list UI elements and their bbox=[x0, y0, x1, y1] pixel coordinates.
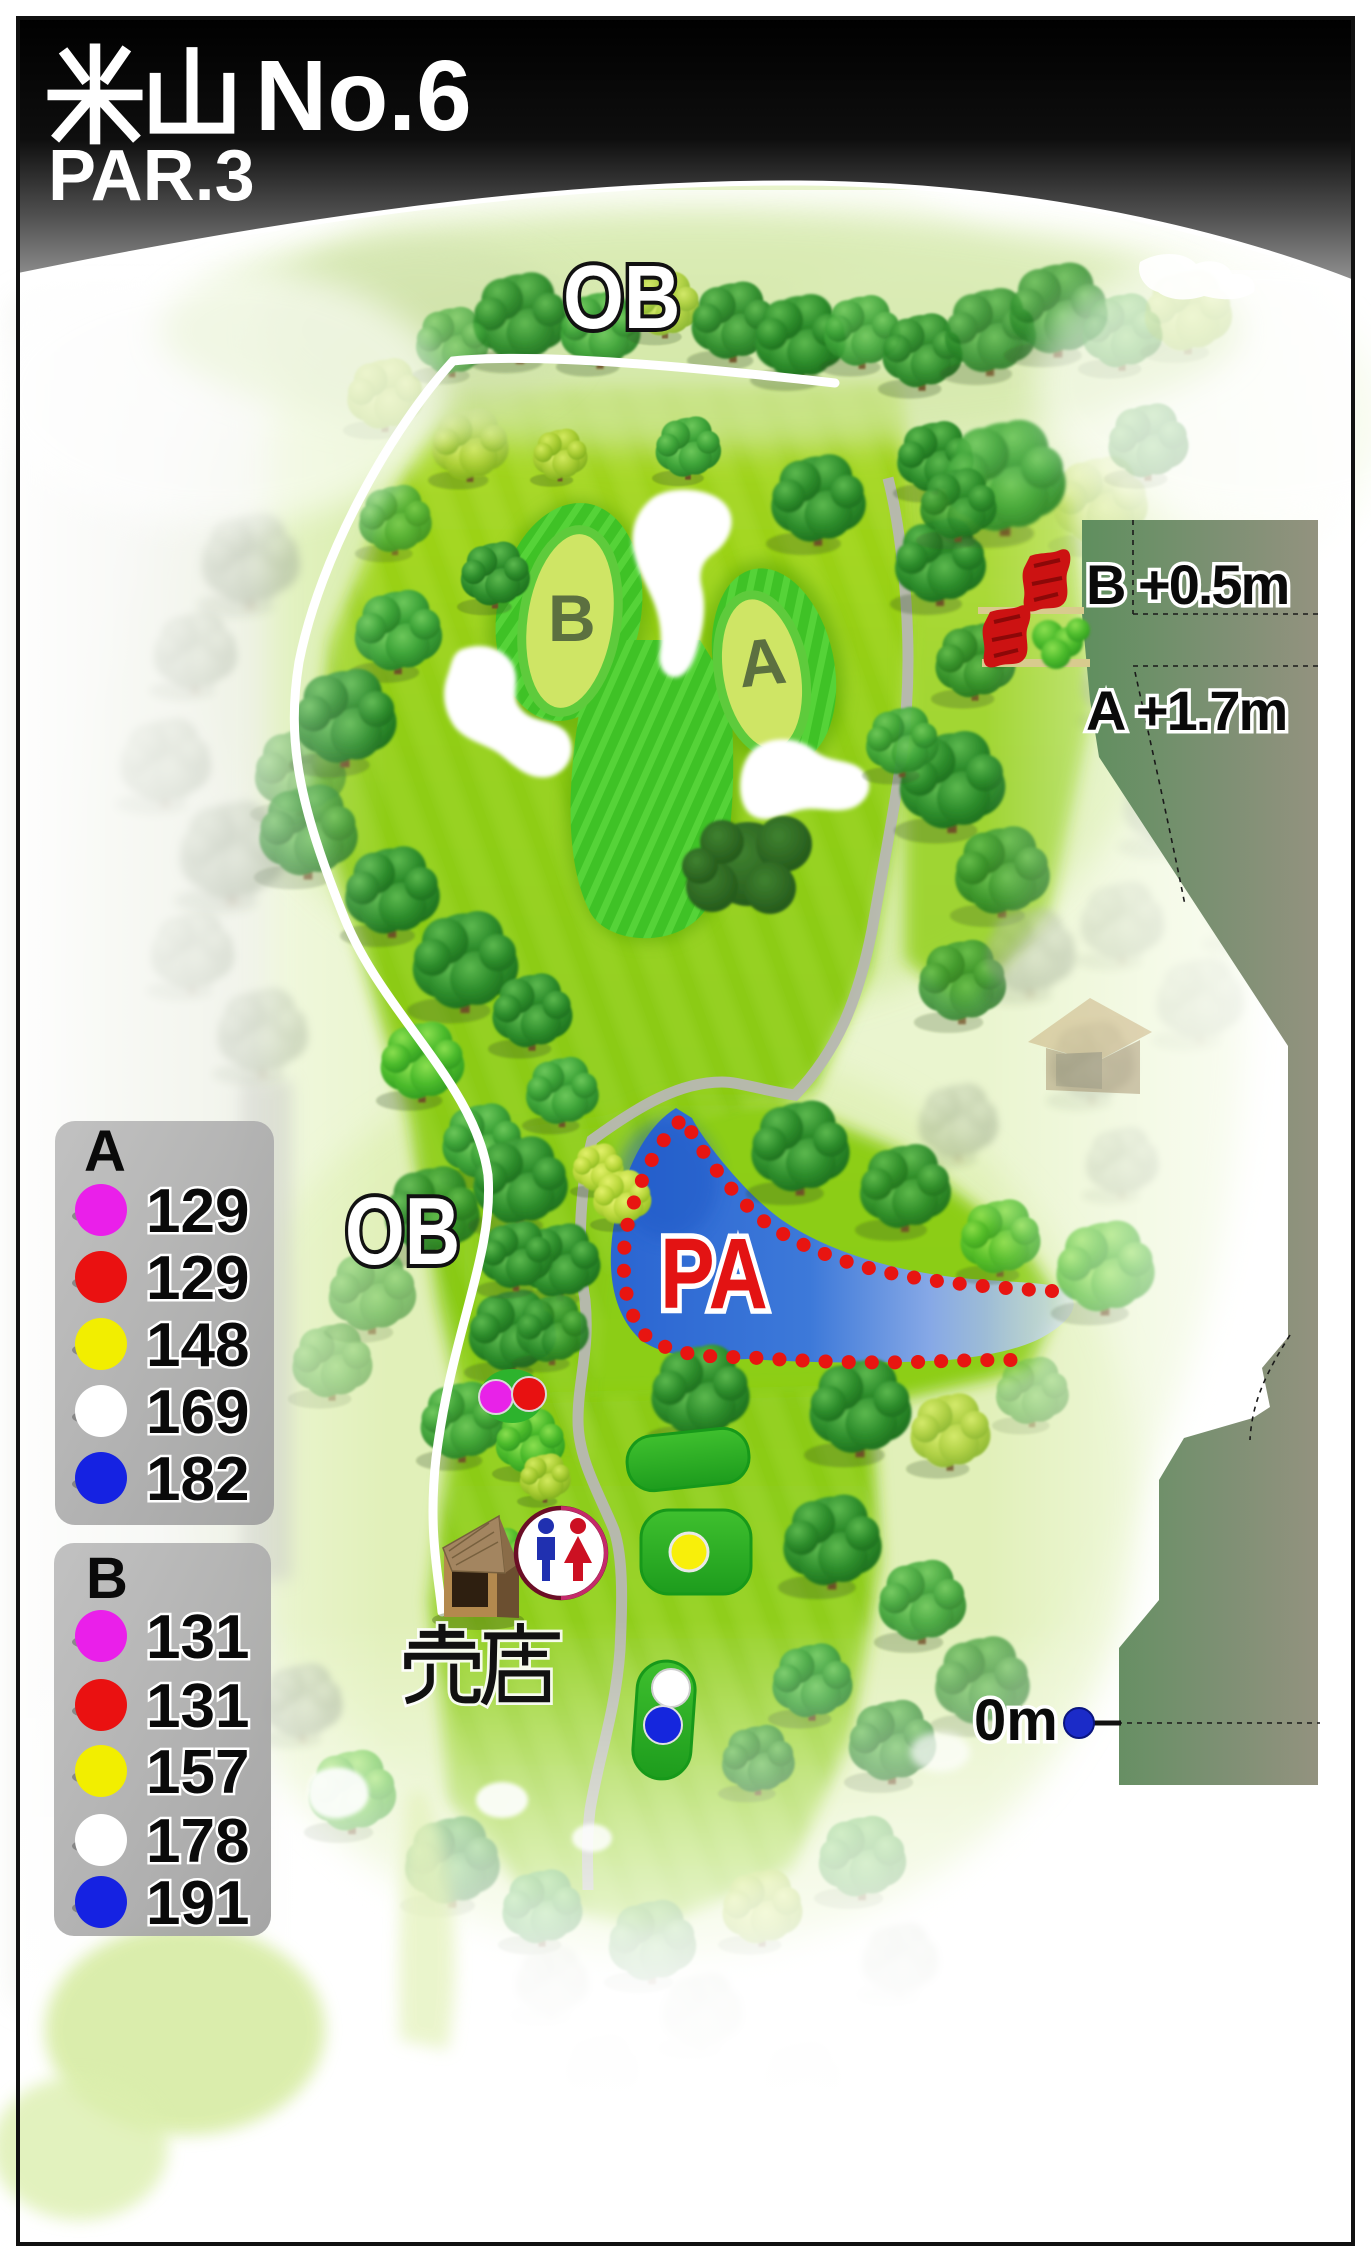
svg-text:148: 148 bbox=[146, 1311, 249, 1380]
svg-text:157: 157 bbox=[146, 1738, 249, 1807]
svg-text:PA: PA bbox=[660, 1218, 768, 1330]
svg-text:B +0.5m: B +0.5m bbox=[1086, 553, 1288, 616]
svg-text:A +1.7m: A +1.7m bbox=[1086, 679, 1286, 742]
svg-text:182: 182 bbox=[146, 1445, 249, 1514]
svg-text:B: B bbox=[86, 1546, 128, 1611]
svg-text:191: 191 bbox=[146, 1869, 249, 1938]
svg-text:131: 131 bbox=[146, 1603, 249, 1672]
svg-text:B: B bbox=[548, 581, 596, 655]
svg-text:A: A bbox=[734, 623, 789, 702]
svg-text:OB: OB bbox=[563, 247, 680, 347]
svg-text:A: A bbox=[84, 1119, 126, 1184]
svg-text:131: 131 bbox=[146, 1672, 249, 1741]
svg-text:129: 129 bbox=[146, 1244, 249, 1313]
svg-text:129: 129 bbox=[146, 1177, 249, 1246]
svg-text:0m: 0m bbox=[974, 1688, 1058, 1753]
svg-text:OB: OB bbox=[345, 1178, 460, 1285]
svg-text:PAR.3: PAR.3 bbox=[48, 136, 255, 216]
svg-text:No.6: No.6 bbox=[255, 40, 472, 152]
svg-text:169: 169 bbox=[146, 1378, 249, 1447]
svg-text:178: 178 bbox=[146, 1807, 249, 1876]
